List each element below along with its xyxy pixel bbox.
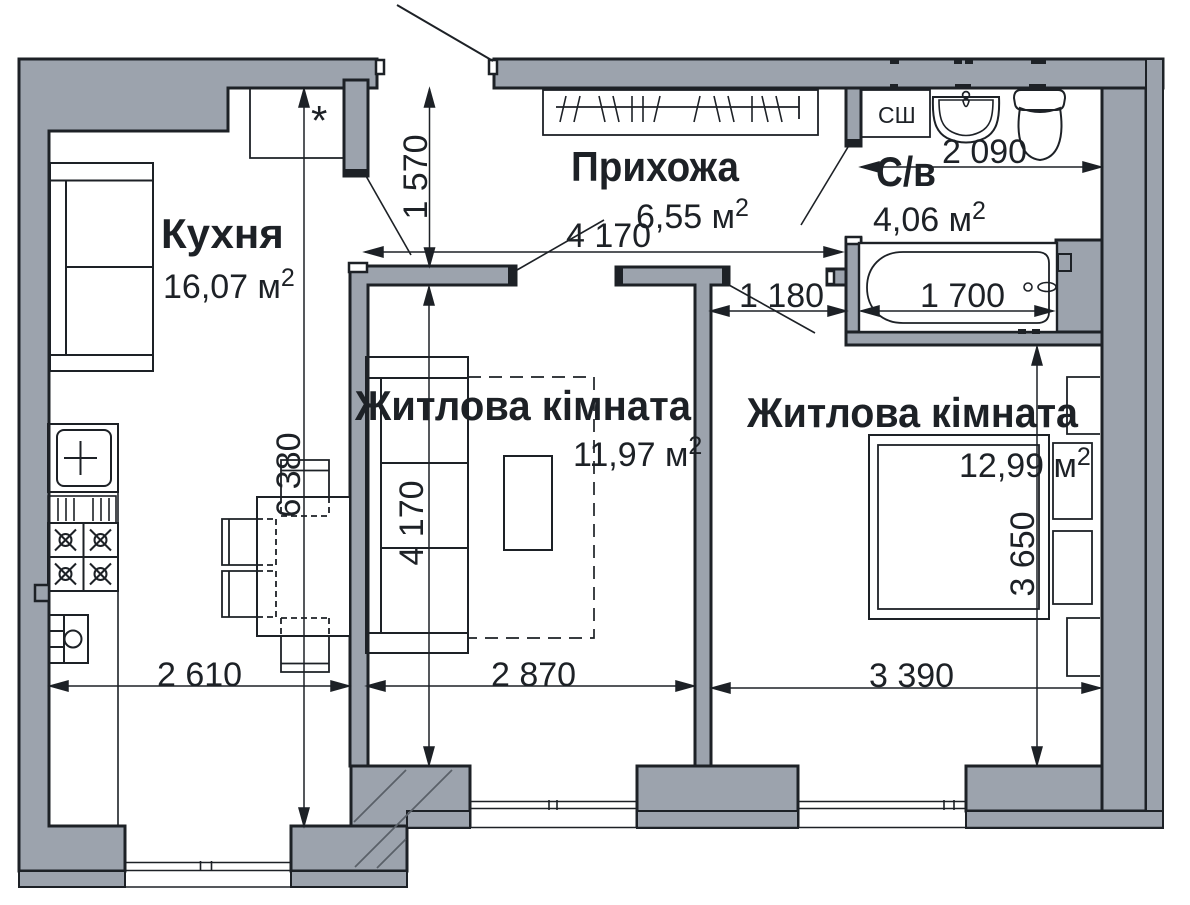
svg-text:4 170: 4 170 [393,480,431,565]
svg-text:6 380: 6 380 [270,432,308,517]
svg-text:Житлова кімната: Житлова кімната [354,382,692,429]
svg-text:2 610: 2 610 [157,656,242,694]
svg-text:*: * [311,97,327,144]
svg-text:2 090: 2 090 [942,133,1027,171]
svg-text:1 180: 1 180 [739,277,824,315]
svg-text:16,07 м2: 16,07 м2 [163,264,295,306]
svg-text:1 700: 1 700 [920,277,1005,315]
svg-text:12,99 м2: 12,99 м2 [959,443,1091,485]
svg-text:С/в: С/в [876,148,936,195]
svg-text:Кухня: Кухня [161,210,284,257]
svg-text:6,55 м2: 6,55 м2 [636,194,749,236]
svg-text:4,06 м2: 4,06 м2 [873,197,986,239]
svg-text:4 170: 4 170 [566,217,651,255]
svg-text:3 650: 3 650 [1004,511,1042,596]
svg-text:3 390: 3 390 [869,657,954,695]
svg-text:Прихожа: Прихожа [571,143,740,190]
svg-text:СШ: СШ [878,102,916,128]
svg-text:1 570: 1 570 [397,134,435,219]
svg-text:2 870: 2 870 [491,656,576,694]
svg-text:11,97 м2: 11,97 м2 [573,432,702,474]
svg-text:Житлова кімната: Житлова кімната [746,389,1079,436]
